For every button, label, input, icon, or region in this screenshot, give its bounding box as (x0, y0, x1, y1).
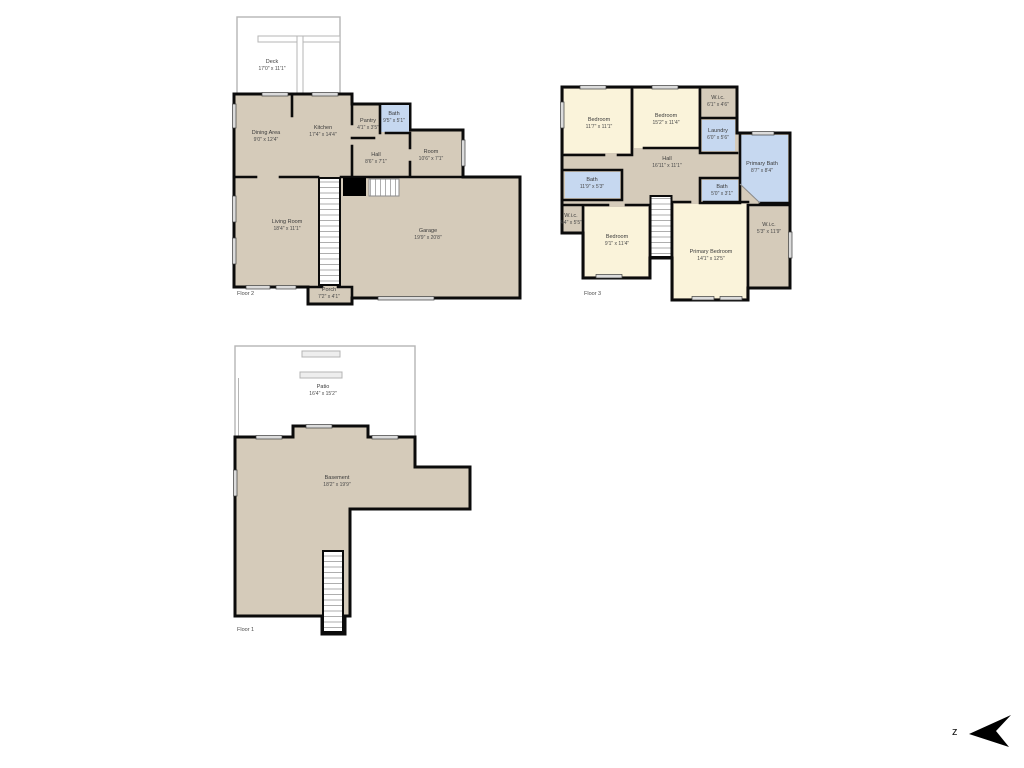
patio-outline (235, 346, 415, 437)
stairs (319, 178, 340, 285)
floor2-plan (233, 17, 521, 304)
floor3-caption: Floor 3 (584, 291, 601, 297)
floorplan-image: Deck 17'0" x 11'1" Dining Area 9'0" x 12… (0, 0, 1024, 768)
stairs (323, 551, 343, 632)
floor3-plan (561, 86, 793, 301)
stairs (651, 196, 672, 257)
entry-steps (369, 179, 399, 196)
floor2-footprint (234, 94, 520, 304)
closet-block (343, 178, 366, 196)
floor1-caption: Floor 1 (237, 627, 254, 633)
floorplan-drawing (0, 0, 1024, 768)
deck-outline (237, 17, 340, 97)
compass-letter: z (952, 726, 958, 738)
floor2-caption: Floor 2 (237, 291, 254, 297)
floor1-plan (234, 346, 471, 634)
north-arrow-icon (969, 715, 1011, 747)
floor1-footprint (235, 426, 470, 634)
bath-room-fill (381, 105, 409, 132)
